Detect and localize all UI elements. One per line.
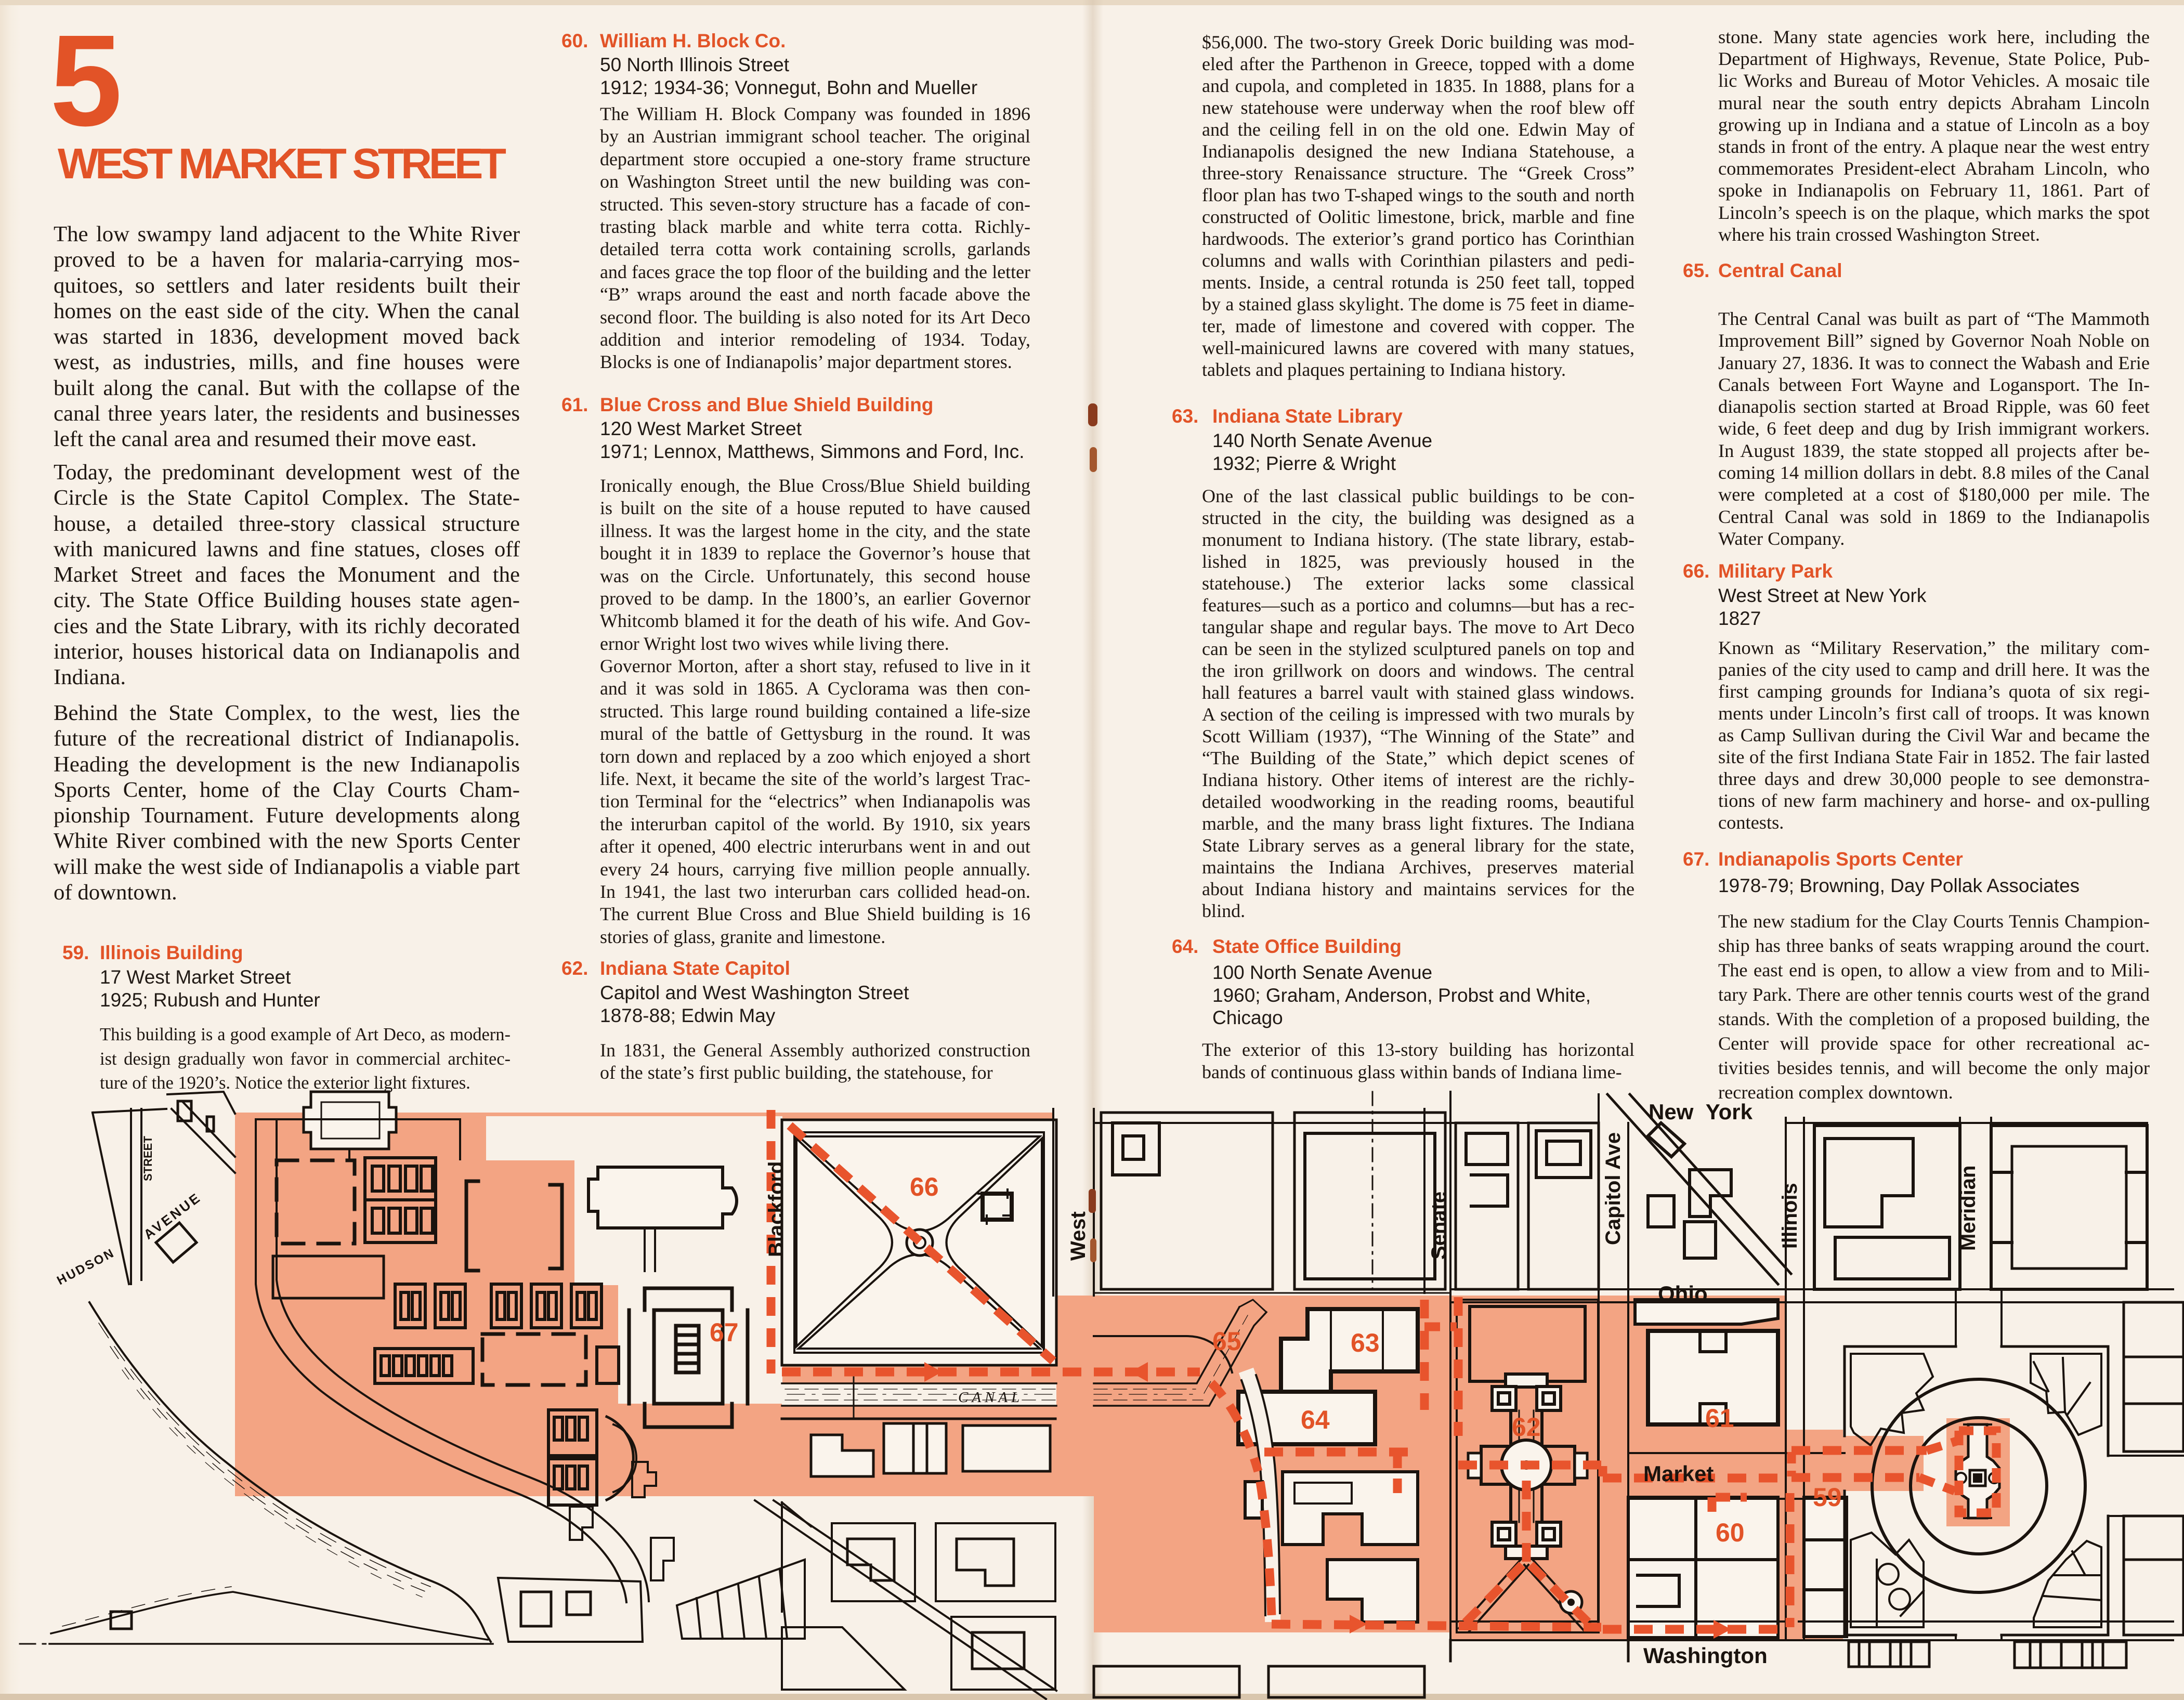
svg-text:66: 66 <box>910 1172 939 1201</box>
svg-text:Senate: Senate <box>1428 1192 1450 1260</box>
svg-text:65: 65 <box>1212 1327 1241 1356</box>
svg-text:STREET: STREET <box>141 1136 154 1181</box>
svg-text:60: 60 <box>1716 1518 1745 1547</box>
svg-text:AVENUE: AVENUE <box>141 1189 204 1242</box>
svg-text:61: 61 <box>1705 1404 1734 1433</box>
svg-text:Ohio: Ohio <box>1658 1281 1708 1306</box>
svg-text:Washington: Washington <box>1643 1643 1768 1668</box>
svg-text:67: 67 <box>710 1318 739 1347</box>
svg-text:59: 59 <box>1813 1483 1842 1512</box>
svg-text:Meridian: Meridian <box>1957 1166 1980 1251</box>
svg-text:Blackford: Blackford <box>765 1161 788 1258</box>
svg-text:CANAL: CANAL <box>958 1389 1023 1406</box>
svg-text:New York: New York <box>1649 1100 1753 1124</box>
svg-text:HUDSON: HUDSON <box>55 1246 117 1288</box>
svg-text:63: 63 <box>1351 1328 1380 1357</box>
svg-text:64: 64 <box>1301 1405 1330 1434</box>
svg-text:Capitol Ave: Capitol Ave <box>1602 1132 1625 1245</box>
svg-text:62: 62 <box>1512 1413 1541 1442</box>
svg-text:Market: Market <box>1643 1461 1714 1486</box>
svg-text:Illinois: Illinois <box>1778 1183 1801 1249</box>
svg-text:West: West <box>1067 1211 1090 1261</box>
